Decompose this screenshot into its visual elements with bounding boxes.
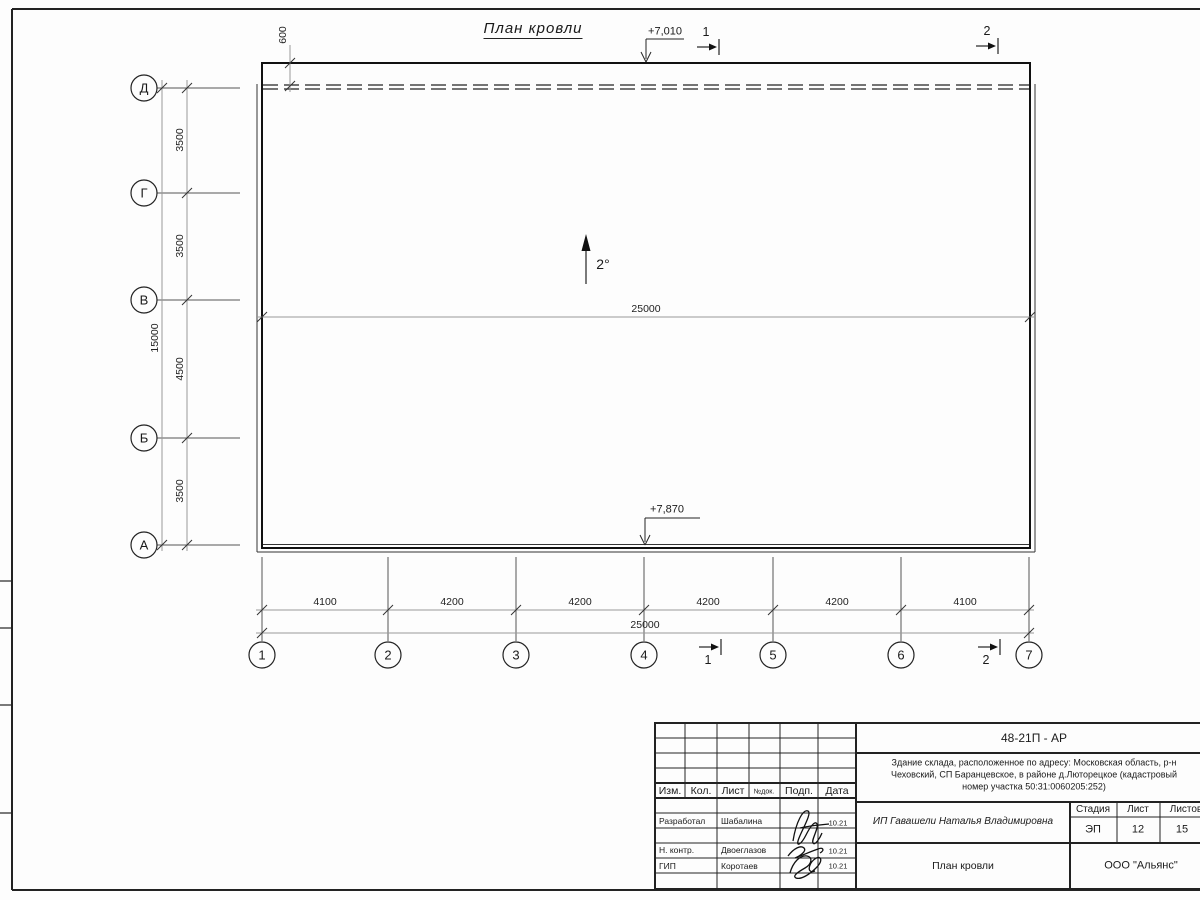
sheet-label: Лист — [1127, 805, 1149, 815]
row-axis-label: Г — [140, 187, 147, 200]
drawing-sheet: План кровли 600 +7,010 1 2 2° 25000 +7,8… — [0, 0, 1200, 900]
dim-label: 4200 — [568, 597, 591, 608]
tb-col-header: Лист — [722, 786, 745, 797]
binding-marks — [0, 581, 12, 813]
sheets-label: Листов — [1170, 805, 1200, 815]
project-description-line: Чеховский, СП Баранцевское, в районе д.Л… — [891, 771, 1177, 780]
col-axis-label: 7 — [1025, 649, 1032, 662]
dim-label: 4200 — [440, 597, 463, 608]
dim-total-label: 25000 — [630, 620, 659, 631]
tb-col-header: Подп. — [785, 786, 813, 797]
dim-label-600: 600 — [278, 26, 289, 44]
elevation-mark-top — [641, 39, 684, 62]
inner-dim-label: 25000 — [631, 304, 660, 315]
dim-total-label: 15000 — [150, 323, 161, 352]
section-label-2-top: 2 — [984, 25, 991, 38]
slope-arrow — [582, 234, 591, 284]
tb-col-header: Дата — [825, 786, 848, 797]
tb-name: Коротаев — [721, 862, 758, 871]
elevation-mark-bottom — [640, 518, 700, 545]
row-axis-label: Б — [140, 432, 149, 445]
row-axis-label: В — [140, 294, 149, 307]
tb-col-header: Изм. — [659, 786, 682, 797]
col-axis-label: 1 — [258, 649, 265, 662]
signature-shabalina-icon — [793, 811, 829, 844]
tb-name: Двоеглазов — [721, 846, 766, 855]
section-label-1-bottom: 1 — [705, 654, 712, 667]
tb-date: 10.21 — [829, 862, 848, 870]
project-description-line: номер участка 50:31:0060205:252) — [962, 783, 1106, 792]
row-axis-label: А — [140, 539, 149, 552]
col-axis-label: 5 — [769, 649, 776, 662]
dim-label: 3500 — [175, 479, 186, 502]
col-axis-label: 4 — [640, 649, 647, 662]
section-mark-2-top — [976, 38, 998, 54]
company-name: ООО "Альянс" — [1104, 861, 1178, 872]
sheet-value: 12 — [1132, 825, 1144, 836]
dim-label: 4200 — [696, 597, 719, 608]
stage-value: ЭП — [1085, 825, 1101, 836]
elevation-label-top: +7,010 — [648, 27, 682, 38]
dim-label: 4200 — [825, 597, 848, 608]
tb-role: Н. контр. — [659, 846, 694, 855]
col-axis-label: 6 — [897, 649, 904, 662]
tb-col-header: №док. — [754, 789, 775, 796]
dim-label: 4100 — [953, 597, 976, 608]
dim-label: 3500 — [175, 128, 186, 151]
section-label-1-top: 1 — [703, 26, 710, 39]
client-name: ИП Гавашели Наталья Владимировна — [873, 817, 1053, 827]
tb-col-header: Кол. — [691, 786, 712, 797]
col-axis-label: 2 — [384, 649, 391, 662]
stage-label: Стадия — [1076, 805, 1110, 815]
sheet-name: План кровли — [932, 861, 994, 872]
tb-date: 10.21 — [829, 819, 848, 827]
dim-label: 4100 — [313, 597, 336, 608]
section-label-2-bottom: 2 — [983, 654, 990, 667]
section-mark-1-top — [697, 39, 719, 55]
project-description-line: Здание склада, расположенное по адресу: … — [892, 759, 1177, 768]
tb-role: Разработал — [659, 817, 705, 826]
doc-number: 48-21П - АР — [1001, 732, 1067, 744]
dim-label: 4500 — [175, 357, 186, 380]
tb-date: 10.21 — [829, 847, 848, 855]
elevation-label-bottom: +7,870 — [650, 505, 684, 516]
dim-label: 3500 — [175, 234, 186, 257]
slope-label: 2° — [596, 257, 609, 271]
page-title: План кровли — [484, 21, 583, 39]
tb-name: Шабалина — [721, 817, 762, 826]
row-axis-label: Д — [140, 82, 149, 95]
sheets-value: 15 — [1176, 825, 1188, 836]
tb-role: ГИП — [659, 862, 676, 871]
col-axis-label: 3 — [512, 649, 519, 662]
